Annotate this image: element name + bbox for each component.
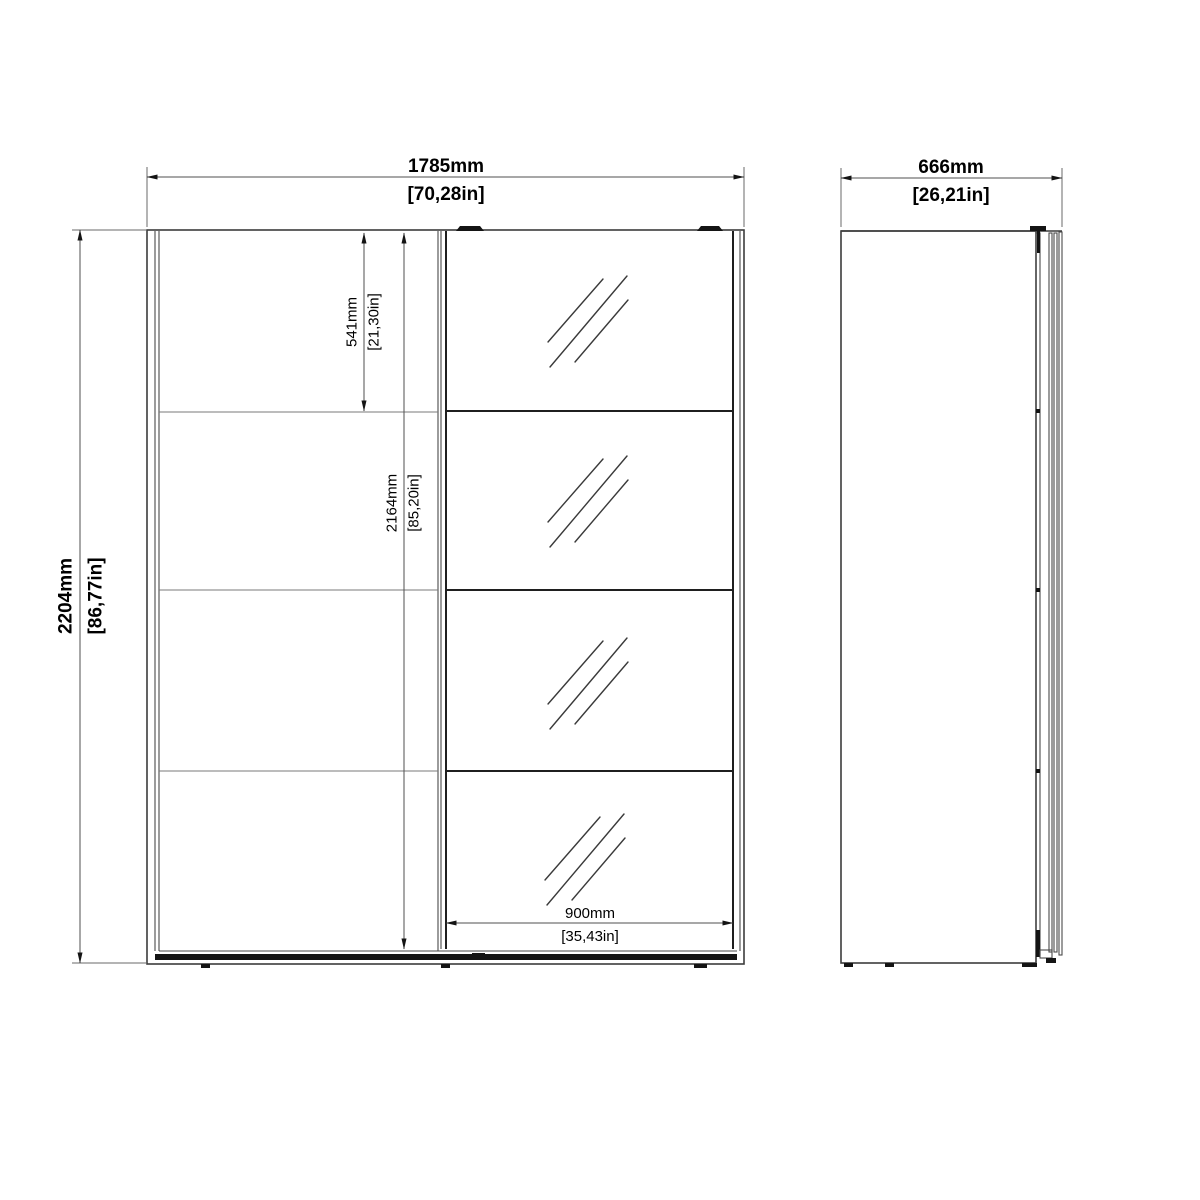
left-sliding-door <box>159 231 438 951</box>
front-view <box>147 226 744 968</box>
dim-mirror-door-width-mm: 900mm <box>565 905 615 922</box>
dim-top-panel-height-mm: 541mm <box>344 297 361 347</box>
mirror-sliding-door <box>441 226 733 949</box>
dim-mirror-door-width: 900mm [35,43in] <box>446 905 733 945</box>
mirror-glass-icon <box>548 276 628 367</box>
foot-glide <box>1022 963 1037 967</box>
dim-top-panel-height: 541mm [21,30in] <box>344 233 383 411</box>
mirror-glass-icon <box>548 456 628 547</box>
foot-glide <box>201 964 210 968</box>
dim-door-height-in: [85,20in] <box>406 474 423 532</box>
dim-mirror-door-width-in: [35,43in] <box>561 928 619 945</box>
dim-overall-width-in: [70,28in] <box>407 184 484 205</box>
door-roller-bracket <box>456 226 484 231</box>
side-door-edge <box>1030 226 1062 963</box>
bottom-track <box>155 951 737 968</box>
side-carcass-outline <box>841 231 1036 963</box>
drawing-svg: 1785mm [70,28in] 666mm [26,21in] 2204mm … <box>0 0 1200 1200</box>
dim-door-height: 2164mm [85,20in] <box>384 233 423 949</box>
foot-glide <box>694 964 707 968</box>
top-track-bracket <box>1030 226 1046 231</box>
dim-overall-depth: 666mm [26,21in] <box>841 157 1062 227</box>
foot-glide <box>844 963 853 967</box>
dim-overall-depth-in: [26,21in] <box>912 185 989 206</box>
wardrobe-dimension-drawing: 1785mm [70,28in] 666mm [26,21in] 2204mm … <box>0 0 1200 1200</box>
dim-overall-depth-mm: 666mm <box>918 157 984 178</box>
dim-overall-width-mm: 1785mm <box>408 156 484 177</box>
foot-glide <box>441 964 450 968</box>
dim-door-height-mm: 2164mm <box>384 474 401 532</box>
dim-top-panel-height-in: [21,30in] <box>366 293 383 351</box>
dim-overall-height-mm: 2204mm <box>56 558 77 634</box>
dim-overall-width: 1785mm [70,28in] <box>147 156 744 227</box>
dim-overall-height-in: [86,77in] <box>86 557 107 634</box>
dim-overall-height: 2204mm [86,77in] <box>56 230 147 963</box>
side-view <box>841 226 1062 967</box>
door-roller-bracket <box>697 226 723 231</box>
foot-glide <box>885 963 894 967</box>
mirror-glass-icon <box>548 638 628 729</box>
mirror-glass-icon <box>545 814 625 905</box>
bottom-roller-bracket <box>1036 930 1040 957</box>
